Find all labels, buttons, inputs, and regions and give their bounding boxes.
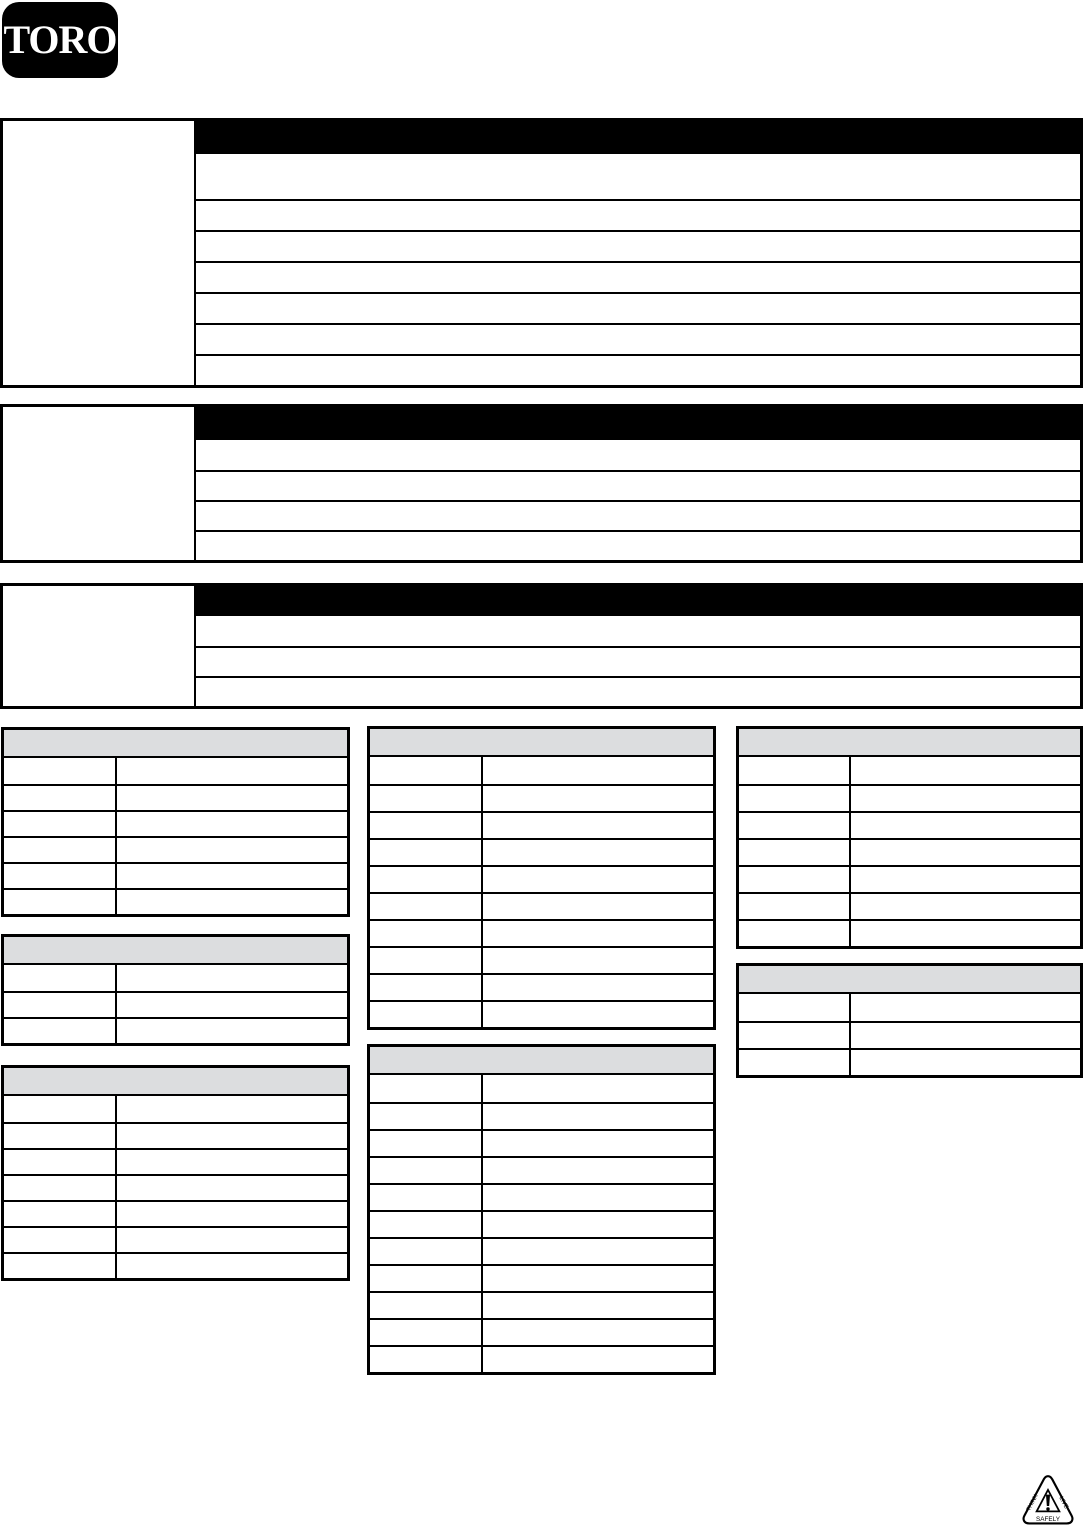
parts-table-4: [367, 726, 716, 1030]
table-row: [739, 811, 1080, 838]
table-row: [739, 994, 1080, 1021]
table-cell: [117, 1150, 347, 1174]
table-cell: [483, 1158, 713, 1183]
table-cell: [851, 921, 1080, 946]
table-cell: [370, 1320, 483, 1345]
table-row: [196, 676, 1080, 706]
table-cell: [483, 1185, 713, 1210]
table-cell: [117, 758, 347, 784]
table-cell: [370, 948, 483, 973]
table-row: [4, 810, 347, 836]
table-cell: [739, 786, 851, 811]
table-cell: [483, 894, 713, 919]
table-cell: [117, 1019, 347, 1043]
table-row: [4, 991, 347, 1017]
table-row: [739, 1021, 1080, 1048]
table-cell: [370, 813, 483, 838]
table-row: [370, 1129, 713, 1156]
table-row: [739, 865, 1080, 892]
table-row: [370, 1075, 713, 1102]
table-row: [370, 1183, 713, 1210]
table-cell: [370, 975, 483, 1000]
table-cell: [4, 1019, 117, 1043]
table-cell: [370, 1075, 483, 1102]
spec-table-2-header: [196, 407, 1080, 440]
table-row: [370, 1210, 713, 1237]
table-cell: [117, 993, 347, 1017]
parts-table-3: [1, 1065, 350, 1281]
table-row: [196, 500, 1080, 530]
table-cell: [4, 1228, 117, 1252]
table-cell: [370, 1185, 483, 1210]
parts-table-6-header: [739, 729, 1080, 757]
table-row: [370, 1102, 713, 1129]
table-cell: [483, 1293, 713, 1318]
table-cell: [370, 1158, 483, 1183]
table-cell: [851, 813, 1080, 838]
table-cell: [483, 948, 713, 973]
table-cell: [483, 975, 713, 1000]
table-cell: [117, 1176, 347, 1200]
spec-table-2: [0, 404, 1083, 563]
table-cell: [117, 1096, 347, 1122]
table-cell: [370, 1266, 483, 1291]
toro-logo-text: TORO®: [3, 20, 116, 60]
table-row: [739, 1048, 1080, 1075]
table-row: [196, 154, 1080, 199]
table-row: [370, 946, 713, 973]
table-cell: [739, 813, 851, 838]
table-row: [370, 784, 713, 811]
table-row: [4, 1200, 347, 1226]
table-row: [196, 646, 1080, 676]
spec-table-1: [0, 118, 1083, 388]
table-cell: [483, 1266, 713, 1291]
table-row: [370, 838, 713, 865]
table-cell: [483, 786, 713, 811]
table-cell: [483, 813, 713, 838]
exclamation-dot: [1046, 1507, 1049, 1510]
table-cell: [739, 894, 851, 919]
table-cell: [117, 1124, 347, 1148]
table-row: [370, 757, 713, 784]
table-cell: [483, 1239, 713, 1264]
table-cell: [851, 840, 1080, 865]
spec-table-3-side-cell: [3, 586, 196, 706]
table-cell: [370, 1347, 483, 1372]
warning-triangle-icon: THINK LIVE SAFELY: [1018, 1471, 1078, 1529]
table-cell: [117, 812, 347, 836]
table-cell: [851, 757, 1080, 784]
table-cell: [851, 786, 1080, 811]
table-cell: [483, 1002, 713, 1027]
table-cell: [370, 894, 483, 919]
table-cell: [117, 864, 347, 888]
table-row: [4, 784, 347, 810]
table-row: [739, 784, 1080, 811]
table-row: [196, 440, 1080, 470]
parts-table-6: [736, 726, 1083, 949]
table-cell: [4, 1202, 117, 1226]
table-row: [196, 470, 1080, 500]
table-cell: [4, 1254, 117, 1278]
table-cell: [117, 838, 347, 862]
table-cell: [117, 965, 347, 991]
table-row: [370, 1000, 713, 1027]
table-cell: [483, 867, 713, 892]
table-cell: [739, 1050, 851, 1075]
table-row: [4, 758, 347, 784]
registered-mark: ®: [118, 53, 125, 62]
safety-text-safely: SAFELY: [1036, 1516, 1061, 1523]
table-cell: [370, 1293, 483, 1318]
table-row: [4, 1252, 347, 1278]
table-cell: [739, 840, 851, 865]
table-cell: [4, 758, 117, 784]
table-cell: [483, 1075, 713, 1102]
table-row: [196, 261, 1080, 292]
table-cell: [370, 1104, 483, 1129]
table-cell: [370, 921, 483, 946]
table-row: [370, 919, 713, 946]
spec-table-1-header: [196, 121, 1080, 154]
table-cell: [370, 840, 483, 865]
table-cell: [4, 1096, 117, 1122]
table-row: [370, 1345, 713, 1372]
table-cell: [483, 1104, 713, 1129]
table-row: [370, 865, 713, 892]
spec-table-3-header: [196, 586, 1080, 616]
table-cell: [4, 1124, 117, 1148]
table-row: [4, 888, 347, 914]
table-cell: [851, 894, 1080, 919]
table-cell: [739, 994, 851, 1021]
table-row: [196, 354, 1080, 385]
table-cell: [4, 812, 117, 836]
table-row: [370, 811, 713, 838]
parts-table-3-header: [4, 1068, 347, 1096]
table-cell: [4, 993, 117, 1017]
parts-table-2: [1, 934, 350, 1046]
table-row: [370, 973, 713, 1000]
table-cell: [483, 757, 713, 784]
table-row: [739, 757, 1080, 784]
parts-table-1: [1, 727, 350, 917]
table-row: [370, 1237, 713, 1264]
table-cell: [483, 1320, 713, 1345]
table-row: [4, 1122, 347, 1148]
table-cell: [483, 1212, 713, 1237]
table-cell: [851, 994, 1080, 1021]
table-cell: [4, 1176, 117, 1200]
table-cell: [370, 1131, 483, 1156]
table-cell: [851, 1023, 1080, 1048]
table-row: [739, 838, 1080, 865]
table-row: [739, 919, 1080, 946]
table-row: [196, 230, 1080, 261]
parts-table-5: [367, 1044, 716, 1375]
table-row: [4, 1017, 347, 1043]
table-cell: [4, 965, 117, 991]
table-cell: [117, 890, 347, 914]
spec-table-1-side-cell: [3, 121, 196, 385]
toro-logo: TORO®: [2, 2, 118, 78]
table-row: [4, 1174, 347, 1200]
table-row: [370, 1318, 713, 1345]
table-row: [739, 892, 1080, 919]
table-cell: [4, 890, 117, 914]
table-cell: [4, 1150, 117, 1174]
table-row: [196, 292, 1080, 323]
spec-table-2-side-cell: [3, 407, 196, 560]
table-row: [370, 1156, 713, 1183]
table-row: [370, 1291, 713, 1318]
table-cell: [370, 1239, 483, 1264]
table-row: [196, 199, 1080, 230]
table-cell: [370, 1002, 483, 1027]
parts-table-7: [736, 963, 1083, 1078]
table-cell: [483, 1131, 713, 1156]
table-row: [196, 530, 1080, 560]
table-row: [196, 323, 1080, 354]
table-row: [4, 862, 347, 888]
table-cell: [4, 786, 117, 810]
table-cell: [483, 840, 713, 865]
table-cell: [370, 1212, 483, 1237]
table-cell: [370, 867, 483, 892]
table-cell: [370, 786, 483, 811]
table-row: [4, 836, 347, 862]
table-cell: [117, 1254, 347, 1278]
table-cell: [483, 1347, 713, 1372]
table-cell: [370, 757, 483, 784]
table-cell: [4, 838, 117, 862]
table-row: [370, 1264, 713, 1291]
table-cell: [739, 1023, 851, 1048]
table-cell: [117, 1228, 347, 1252]
table-cell: [739, 757, 851, 784]
parts-table-5-header: [370, 1047, 713, 1075]
table-cell: [851, 1050, 1080, 1075]
table-cell: [739, 867, 851, 892]
table-row: [370, 892, 713, 919]
table-row: [4, 1148, 347, 1174]
table-row: [196, 616, 1080, 646]
table-cell: [851, 867, 1080, 892]
table-row: [4, 1096, 347, 1122]
table-row: [4, 965, 347, 991]
table-cell: [739, 921, 851, 946]
parts-table-2-header: [4, 937, 347, 965]
parts-table-4-header: [370, 729, 713, 757]
table-cell: [117, 786, 347, 810]
spec-table-3: [0, 583, 1083, 709]
table-row: [4, 1226, 347, 1252]
table-cell: [4, 864, 117, 888]
table-cell: [483, 921, 713, 946]
parts-table-7-header: [739, 966, 1080, 994]
parts-table-1-header: [4, 730, 347, 758]
table-cell: [117, 1202, 347, 1226]
think-live-safely-logo: THINK LIVE SAFELY: [1018, 1471, 1078, 1529]
